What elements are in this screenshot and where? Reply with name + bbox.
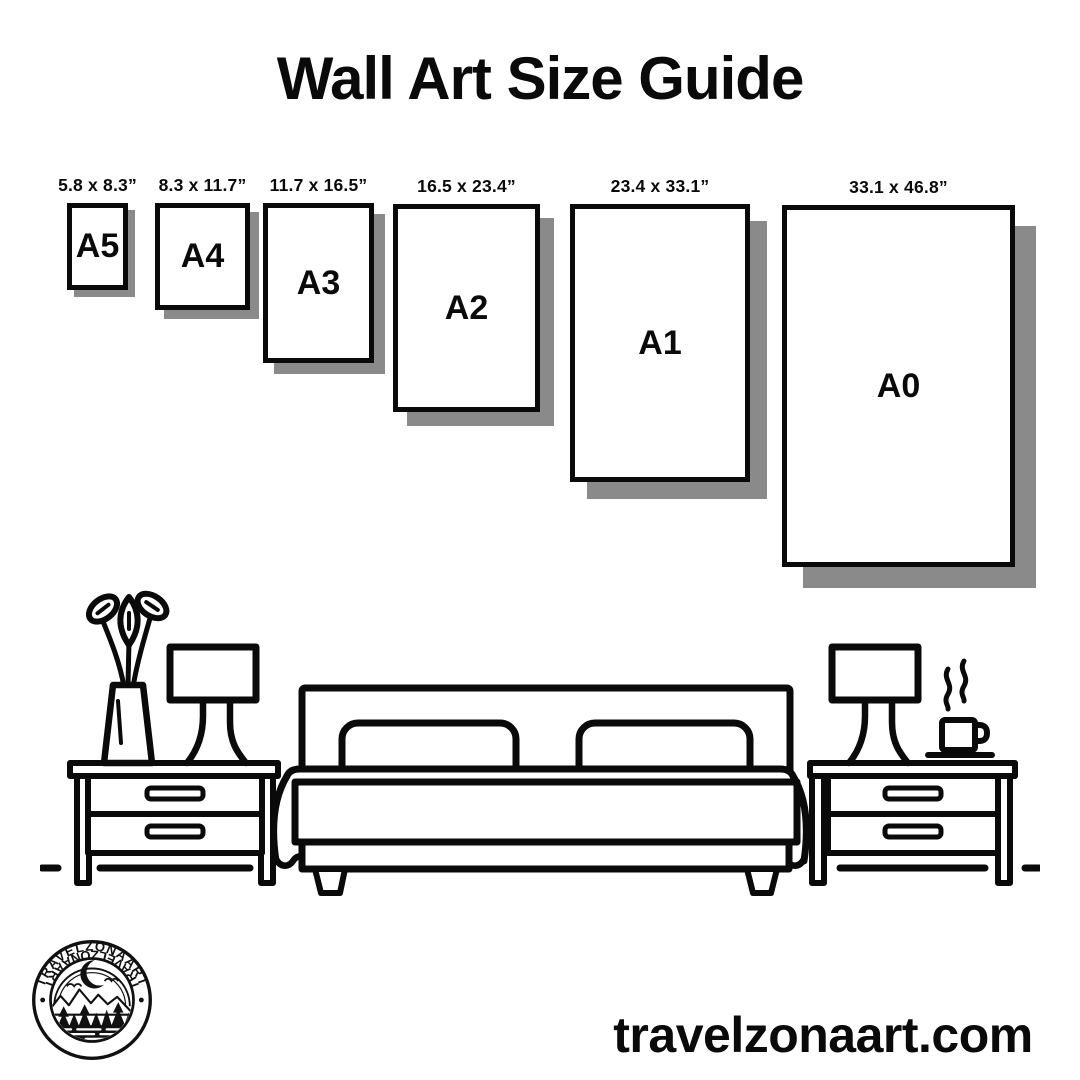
poster: Wall Art Size Guide 5.8 x 8.3” A5 8.3 x …: [0, 0, 1080, 1080]
size-code: A2: [445, 289, 488, 328]
size-dimensions: 8.3 x 11.7”: [159, 175, 247, 196]
size-rectangle: A2: [393, 204, 540, 412]
size-code: A5: [76, 227, 119, 266]
size-item-a5: 5.8 x 8.3” A5: [67, 203, 128, 290]
size-code: A4: [181, 237, 224, 276]
website-url: travelzonaart.com: [563, 1006, 1080, 1064]
bedroom-illustration: [40, 585, 1040, 905]
steam-icon: [946, 661, 966, 709]
size-dimensions: 5.8 x 8.3”: [58, 175, 137, 196]
logo-dot-left: [40, 998, 45, 1003]
size-dimensions: 16.5 x 23.4”: [417, 176, 516, 197]
size-item-a1: 23.4 x 33.1” A1: [570, 204, 750, 482]
size-rectangle: A3: [263, 203, 374, 363]
vase-flowers-icon: [84, 589, 171, 763]
page-title: Wall Art Size Guide: [0, 44, 1080, 113]
table-lamp-left-icon: [170, 647, 256, 763]
size-item-a2: 16.5 x 23.4” A2: [393, 204, 540, 412]
size-item-a0: 33.1 x 46.8” A0: [782, 205, 1015, 567]
size-item-a3: 11.7 x 16.5” A3: [263, 203, 374, 363]
table-lamp-right-icon: [832, 647, 918, 763]
bed-icon: [274, 688, 807, 893]
brand-logo: TRAVELZONAART TRAVELZONAART: [29, 937, 155, 1063]
size-rectangle: A1: [570, 204, 750, 482]
size-code: A0: [877, 367, 920, 406]
size-code: A1: [638, 324, 681, 363]
coffee-cup-icon: [928, 661, 992, 755]
size-dimensions: 23.4 x 33.1”: [611, 176, 710, 197]
size-code: A3: [297, 264, 340, 303]
size-item-a4: 8.3 x 11.7” A4: [155, 203, 250, 310]
size-dimensions: 11.7 x 16.5”: [270, 175, 368, 196]
logo-dot-right: [139, 998, 144, 1003]
size-rectangle: A0: [782, 205, 1015, 567]
size-rectangle: A4: [155, 203, 250, 310]
size-rectangle: A5: [67, 203, 128, 290]
size-dimensions: 33.1 x 46.8”: [849, 177, 948, 198]
